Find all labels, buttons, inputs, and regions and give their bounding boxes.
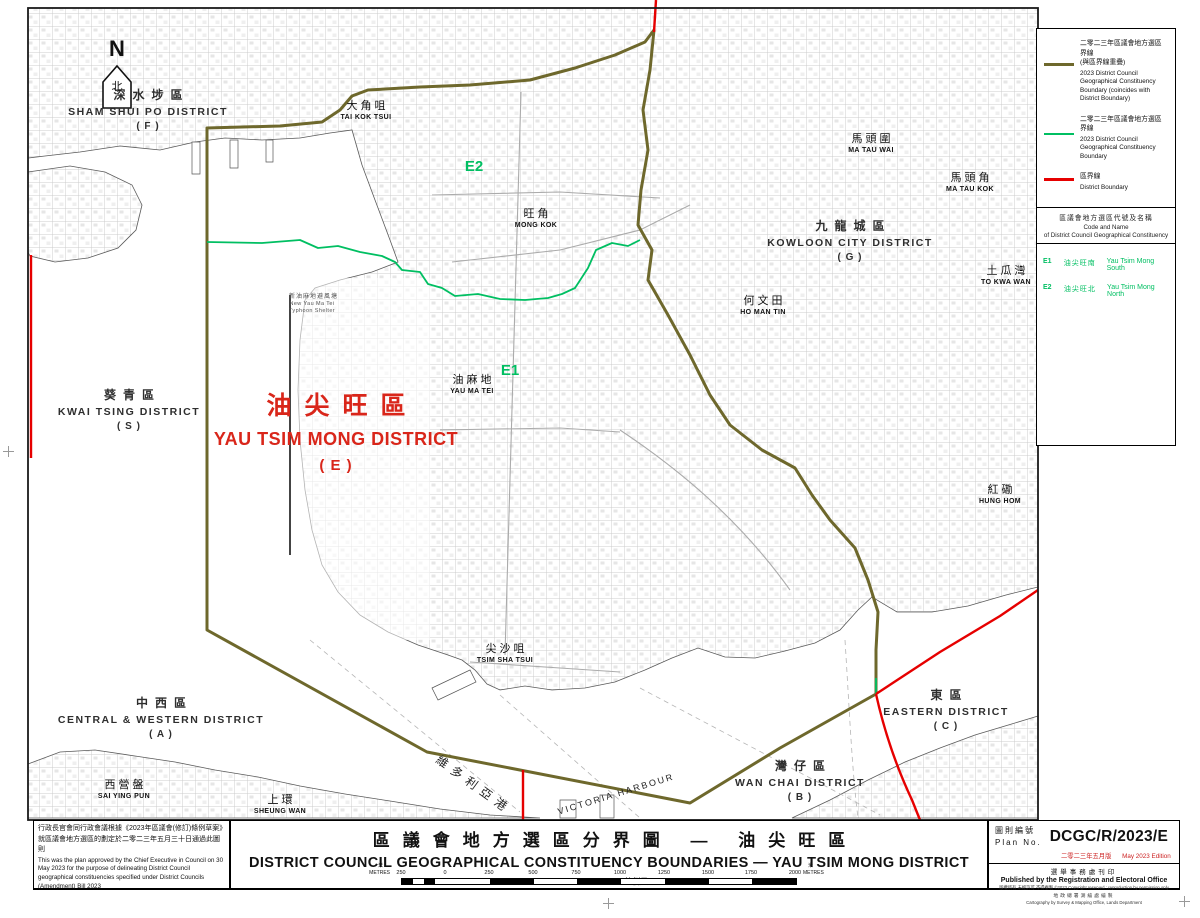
legend-item-cn2: (與區界線重疊): [1080, 58, 1168, 68]
legend-code-cn: 油尖旺南: [1064, 258, 1101, 272]
legend-item-en: 2023 District Council Geographical Const…: [1080, 70, 1168, 104]
publisher-section: 選舉事務處刊印 Published by the Registration an…: [989, 863, 1179, 905]
legend-line-green: [1044, 133, 1074, 135]
scalebar-unit-left: METRES: [369, 870, 390, 876]
approval-note-block: 行政長官會同行政會議根據《2023年區議會(修訂)條例草案》就區議會地方選區的劃…: [33, 820, 230, 890]
approval-note-cn: 行政長官會同行政會議根據《2023年區議會(修訂)條例草案》就區議會地方選區的劃…: [38, 824, 225, 856]
approval-note-en: This was the plan approved by the Chief …: [38, 857, 225, 892]
legend-item-constituency-district: 二零二三年區議會地方選區界線 (與區界線重疊) 2023 District Co…: [1044, 39, 1168, 104]
central-ferry-piers: [560, 795, 614, 818]
north-label: N: [109, 36, 125, 62]
map-sheet: N 北 深水埗區 SHAM SHUI PO DISTRICT ( F ) 葵青區…: [0, 0, 1200, 918]
ocean-terminal-pier: [432, 670, 476, 700]
plan-number-row: 圖則編號 Plan No. DCGC/R/2023/E: [989, 821, 1179, 851]
kowloon-land: [28, 8, 1038, 690]
scalebar-unit-right: METRES: [803, 870, 824, 876]
legend-code-rows: E1 油尖旺南 Yau Tsim Mong South E2 油尖旺北 Yau …: [1037, 244, 1175, 324]
legend-item-cn: 二零二三年區議會地方選區界線: [1080, 39, 1168, 58]
legend-code: E2: [1043, 284, 1058, 298]
map-title-cn: 區議會地方選區分界圖 — 油尖旺區: [231, 826, 987, 851]
plan-number: DCGC/R/2023/E: [1050, 828, 1168, 846]
legend-code-row: E2 油尖旺北 Yau Tsim Mong North: [1043, 284, 1169, 298]
scalebar-unit-right-cn: 米: [808, 862, 813, 869]
stonecutters-land: [28, 166, 142, 262]
plan-label-en: Plan No.: [995, 837, 1042, 849]
registration-mark: [1179, 896, 1190, 907]
legend-code-en: Yau Tsim Mong South: [1107, 258, 1169, 272]
north-cn-label: 北: [112, 78, 123, 94]
legend-code-header-en2: of District Council Geographical Constit…: [1039, 232, 1173, 239]
legend-item-en: District Boundary: [1080, 184, 1128, 193]
legend-code-header: 區議會地方選區代號及名稱 Code and Name of District C…: [1037, 207, 1175, 244]
legend-panel: 二零二三年區議會地方選區界線 (與區界線重疊) 2023 District Co…: [1036, 28, 1176, 446]
edition-cn: 二零二三年五月版: [1061, 853, 1111, 860]
legend-code: E1: [1043, 258, 1058, 272]
scalebar-unit-left-cn: 米: [378, 862, 383, 869]
legend-code-header-cn: 區議會地方選區代號及名稱: [1039, 212, 1173, 222]
cargo-piers: [192, 140, 273, 174]
edition-en: May 2023 Edition: [1122, 853, 1171, 860]
map-title-en: DISTRICT COUNCIL GEOGRAPHICAL CONSTITUEN…: [231, 855, 987, 871]
reclamation-area: [296, 278, 430, 640]
north-point-land: [792, 716, 1038, 818]
copyright-note: 版權所有 未經許可 不得複製 ©2023 Copyright reserved …: [989, 885, 1179, 891]
cartography-cn: 地政總署測繪處繪製: [989, 892, 1179, 899]
map-canvas: [0, 0, 1200, 918]
cartography-en: Cartography by Survey & Mapping Office, …: [989, 900, 1179, 905]
plan-label-cn: 圖則編號: [995, 825, 1042, 837]
registration-mark: [3, 446, 14, 457]
legend-item-cn: 區界線: [1080, 172, 1128, 182]
legend-line-olive: [1044, 63, 1074, 66]
edition-line: 二零二三年五月版 May 2023 Edition: [1061, 851, 1179, 860]
scalebar: [401, 878, 797, 885]
ferry-route-central: [500, 695, 640, 818]
plan-number-block: 圖則編號 Plan No. DCGC/R/2023/E 二零二三年五月版 May…: [988, 820, 1180, 890]
publisher-cn: 選舉事務處刊印: [989, 866, 1179, 876]
publisher-en: Published by the Registration and Electo…: [989, 877, 1179, 884]
legend-code-header-en1: Code and Name: [1039, 224, 1173, 231]
legend-item-en: 2023 District Council Geographical Const…: [1080, 136, 1168, 162]
legend-item-constituency: 二零二三年區議會地方選區界線 2023 District Council Geo…: [1044, 115, 1168, 162]
legend-item-cn: 二零二三年區議會地方選區界線: [1080, 115, 1168, 134]
legend-code-cn: 油尖旺北: [1064, 284, 1101, 298]
legend-items: 二零二三年區議會地方選區界線 (與區界線重疊) 2023 District Co…: [1037, 29, 1175, 207]
legend-code-en: Yau Tsim Mong North: [1107, 284, 1169, 298]
legend-line-red: [1044, 178, 1074, 181]
legend-code-row: E1 油尖旺南 Yau Tsim Mong South: [1043, 258, 1169, 272]
registration-mark: [603, 898, 614, 909]
legend-item-district-boundary: 區界線 District Boundary: [1044, 172, 1168, 192]
